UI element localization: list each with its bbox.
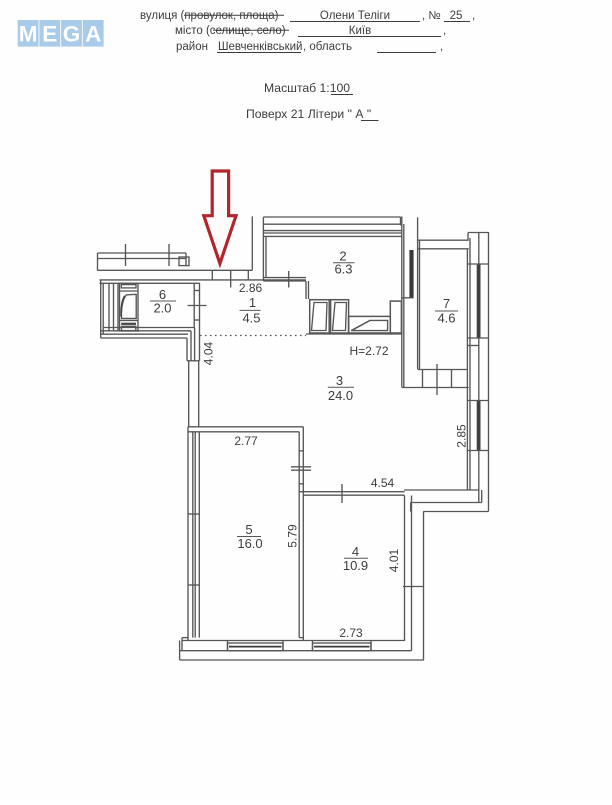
svg-text:Київ: Київ: [349, 25, 371, 37]
svg-text:A: A: [85, 22, 101, 47]
svg-text:2.77: 2.77: [234, 434, 258, 448]
svg-text:7: 7: [443, 296, 450, 311]
svg-text:2.73: 2.73: [339, 626, 363, 640]
svg-text:3: 3: [336, 373, 343, 388]
svg-text:4.5: 4.5: [242, 311, 260, 326]
svg-text:,: ,: [472, 10, 475, 22]
svg-text:1: 1: [249, 295, 256, 310]
svg-text:24.0: 24.0: [328, 388, 353, 403]
svg-text:25: 25: [450, 10, 463, 22]
svg-text:Поверх 21 Літери " А ": Поверх 21 Літери " А ": [246, 107, 371, 121]
svg-text:10.9: 10.9: [343, 558, 368, 573]
svg-text:G: G: [63, 22, 81, 47]
svg-text:2.85: 2.85: [455, 424, 469, 448]
svg-text:, №: , №: [422, 10, 441, 22]
svg-text:Шевченківський: Шевченківський: [218, 41, 302, 53]
svg-text:4: 4: [352, 544, 359, 559]
svg-text:,: ,: [440, 41, 443, 53]
svg-text:E: E: [42, 22, 57, 47]
svg-text:,: ,: [443, 25, 446, 37]
svg-text:Масштаб 1:100: Масштаб 1:100: [264, 81, 350, 95]
svg-text:16.0: 16.0: [237, 536, 262, 551]
svg-text:, область: , область: [303, 41, 352, 53]
svg-text:6.3: 6.3: [334, 262, 352, 277]
svg-text:район: район: [176, 41, 208, 53]
svg-text:Олени Теліги: Олени Теліги: [320, 10, 390, 22]
svg-text:5: 5: [245, 522, 252, 537]
svg-text:4.54: 4.54: [371, 476, 395, 490]
svg-text:H=2.72: H=2.72: [349, 344, 388, 358]
svg-text:4.01: 4.01: [387, 548, 401, 572]
svg-text:4.6: 4.6: [437, 311, 455, 326]
svg-text:5.79: 5.79: [286, 524, 300, 548]
svg-text:4.04: 4.04: [202, 341, 216, 365]
svg-text:M: M: [19, 22, 38, 47]
svg-text:місто (селище, село): місто (селище, село): [175, 25, 286, 37]
svg-text:2.86: 2.86: [239, 281, 263, 295]
svg-text:2.0: 2.0: [153, 301, 171, 316]
svg-text:вулиця (провулок, площа): вулиця (провулок, площа): [140, 10, 279, 22]
